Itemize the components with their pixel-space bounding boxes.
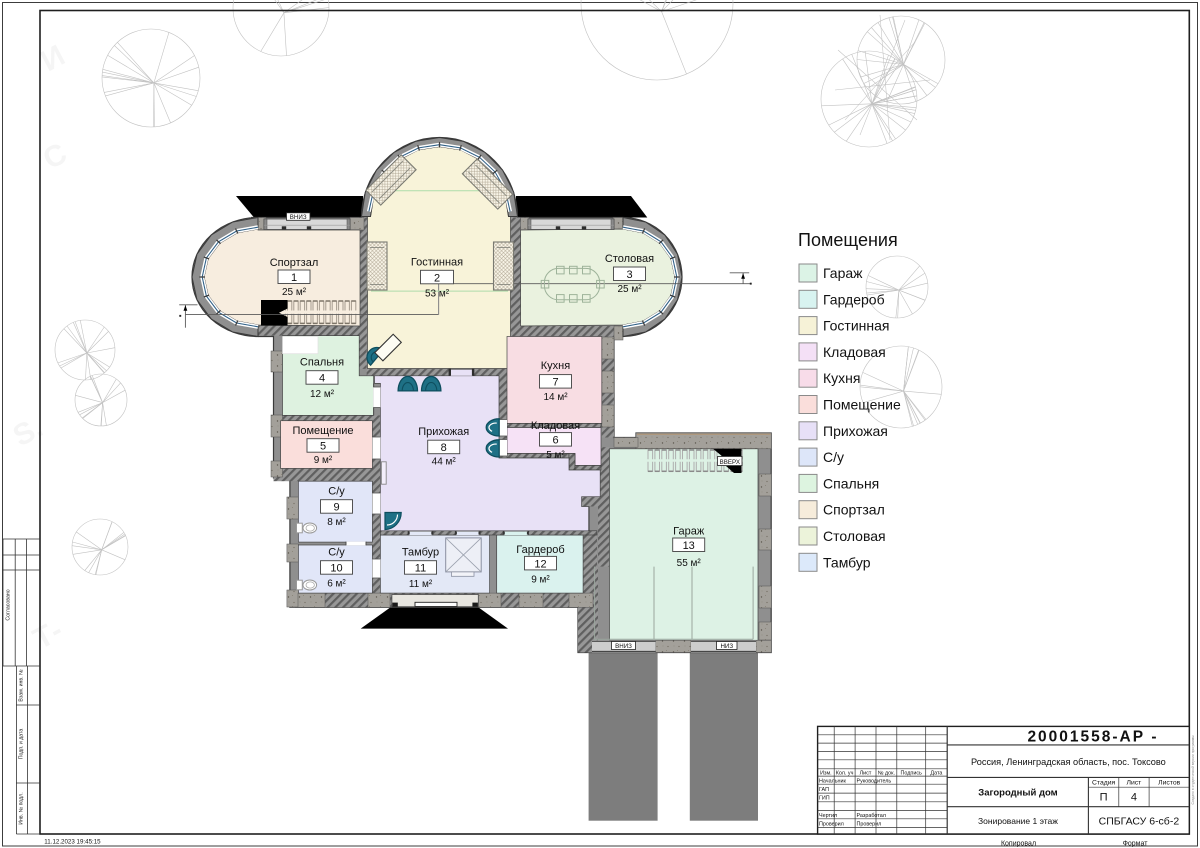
svg-text:С/у: С/у [328, 547, 345, 559]
svg-text:Проверил: Проверил [819, 822, 844, 828]
svg-text:Кухня: Кухня [541, 360, 570, 372]
svg-text:Помещение: Помещение [823, 397, 901, 413]
svg-text:53 м²: 53 м² [425, 289, 450, 300]
svg-text:НИЗ: НИЗ [720, 643, 733, 650]
svg-text:5: 5 [320, 441, 326, 453]
svg-text:Помещение: Помещение [292, 425, 353, 437]
svg-text:Листов: Листов [1158, 780, 1180, 787]
svg-text:Кладовая: Кладовая [823, 344, 886, 360]
svg-text:Согласовано: Согласовано [6, 589, 12, 620]
svg-text:1: 1 [291, 272, 297, 284]
svg-text:Проверил: Проверил [857, 822, 882, 828]
svg-text:Столовая: Столовая [823, 528, 886, 544]
svg-text:3: 3 [626, 269, 632, 281]
svg-text:Копировал: Копировал [1001, 841, 1036, 848]
svg-text:ВНИЗ: ВНИЗ [290, 214, 307, 221]
svg-text:4: 4 [319, 373, 325, 385]
svg-text:8 м²: 8 м² [327, 517, 346, 528]
svg-text:Лист: Лист [860, 771, 872, 777]
svg-text:П: П [1100, 792, 1108, 804]
svg-text:9: 9 [333, 502, 339, 514]
svg-text:Спальня: Спальня [300, 357, 344, 369]
svg-text:Лист: Лист [1127, 780, 1142, 787]
svg-text:14 м²: 14 м² [543, 392, 568, 403]
svg-text:Спальня: Спальня [823, 475, 879, 491]
svg-text:6: 6 [552, 435, 558, 447]
svg-text:Изм.: Изм. [820, 771, 832, 777]
svg-text:Взам. инв. №: Взам. инв. № [18, 669, 24, 702]
svg-text:9 м²: 9 м² [314, 455, 333, 466]
svg-text:Гараж: Гараж [823, 265, 863, 281]
svg-text:12 м²: 12 м² [310, 389, 335, 400]
svg-text:Гостинная: Гостинная [411, 257, 463, 269]
svg-text:Тамбур: Тамбур [402, 547, 439, 559]
svg-text:Спортзал: Спортзал [270, 257, 319, 269]
svg-text:Кол. уч: Кол. уч [836, 771, 854, 777]
svg-text:Гардероб: Гардероб [823, 291, 885, 307]
svg-text:Помещения: Помещения [798, 230, 898, 250]
svg-text:Столовая: Столовая [605, 253, 654, 265]
svg-text:5 м²: 5 м² [546, 450, 565, 461]
svg-text:13: 13 [683, 540, 695, 552]
svg-text:4: 4 [1131, 792, 1137, 804]
svg-text:8: 8 [441, 442, 447, 454]
svg-text:СПБГАСУ 6-сб-2: СПБГАСУ 6-сб-2 [1099, 816, 1180, 828]
svg-text:11 м²: 11 м² [409, 579, 433, 590]
svg-text:Создано в студенческой версии: Создано в студенческой версии программы [1191, 735, 1195, 805]
svg-text:Спортзал: Спортзал [823, 502, 885, 518]
svg-text:Формат: Формат [1123, 841, 1149, 848]
svg-text:Руководитель: Руководитель [857, 778, 892, 784]
svg-text:12: 12 [534, 558, 546, 570]
svg-text:С/у: С/у [328, 486, 345, 498]
svg-text:Прихожая: Прихожая [823, 423, 888, 439]
svg-text:Подпись: Подпись [901, 771, 923, 777]
svg-text:55 м²: 55 м² [677, 558, 702, 569]
svg-text:Разработал: Разработал [857, 813, 886, 819]
svg-text:10: 10 [330, 563, 342, 575]
svg-text:Инв. № подл.: Инв. № подл. [18, 792, 24, 824]
svg-text:Гардероб: Гардероб [516, 544, 564, 556]
svg-text:Россия, Ленинградская область,: Россия, Ленинградская область, пос. Токс… [971, 757, 1166, 767]
svg-text:25 м²: 25 м² [282, 287, 307, 298]
svg-text:Начальник: Начальник [819, 778, 847, 784]
svg-text:Гостинная: Гостинная [823, 318, 890, 334]
svg-text:ГАП: ГАП [819, 787, 829, 793]
svg-text:Зонирование 1 этаж: Зонирование 1 этаж [978, 816, 1058, 826]
svg-text:20001558-АР -: 20001558-АР - [1027, 729, 1158, 746]
svg-text:9 м²: 9 м² [531, 575, 550, 586]
svg-text:Кладовая: Кладовая [531, 420, 580, 432]
svg-text:Дата: Дата [930, 771, 942, 777]
svg-text:11: 11 [415, 563, 426, 575]
svg-text:ВНИЗ: ВНИЗ [615, 643, 632, 650]
svg-text:№ док.: № док. [878, 771, 895, 777]
svg-text:Тамбур: Тамбур [823, 554, 871, 570]
svg-text:25 м²: 25 м² [617, 284, 642, 295]
svg-text:11.12.2023 19:45:15: 11.12.2023 19:45:15 [44, 839, 101, 846]
svg-text:2: 2 [434, 272, 440, 284]
svg-text:7: 7 [552, 377, 558, 389]
svg-text:Кухня: Кухня [823, 370, 860, 386]
svg-text:Стадия: Стадия [1092, 780, 1115, 787]
svg-text:ВВЕРХ: ВВЕРХ [720, 459, 740, 466]
svg-text:ГИП: ГИП [819, 796, 830, 802]
svg-text:Гараж: Гараж [673, 526, 705, 538]
svg-text:6 м²: 6 м² [327, 579, 346, 590]
svg-text:Загородный дом: Загородный дом [978, 788, 1057, 799]
svg-text:Прихожая: Прихожая [418, 426, 469, 438]
svg-text:Чертил: Чертил [819, 813, 837, 819]
svg-text:44 м²: 44 м² [432, 457, 457, 468]
svg-text:С/у: С/у [823, 449, 844, 465]
svg-text:Подп. и дата: Подп. и дата [18, 729, 24, 760]
